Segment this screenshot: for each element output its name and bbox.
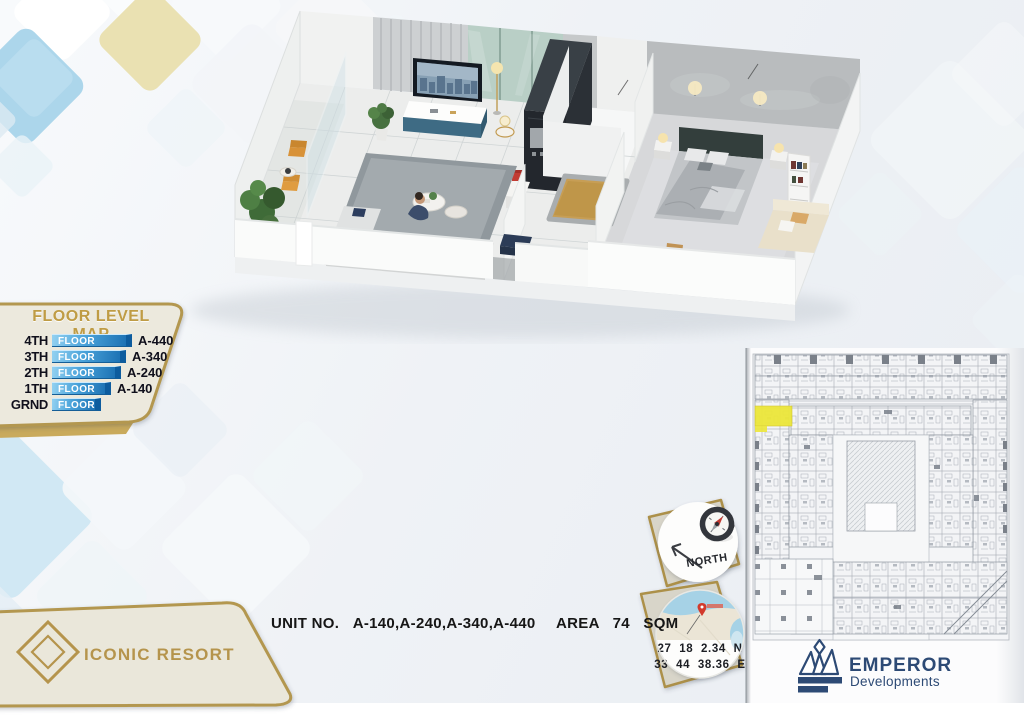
latitude-text: 27 18 2.34 N [657, 643, 742, 655]
floor-level-bar: FLOOR [52, 382, 111, 395]
area-unit: SQM [643, 615, 678, 632]
floor-level-bar: FLOOR [52, 366, 121, 379]
floor-level-label: GRND [10, 397, 48, 412]
unit-code: A-440 [138, 333, 173, 348]
area-label: AREA [556, 615, 599, 632]
unit-numbers: A-140,A-240,A-340,A-440 [353, 615, 536, 632]
building-site-plan [746, 348, 1024, 705]
floor-level-bar: FLOOR [52, 398, 101, 411]
floor-level-row: 1TH FLOOR A-140 [10, 381, 152, 395]
floor-level-label: 2TH [10, 365, 48, 380]
developer-tagline: Developments [850, 674, 940, 689]
floorplan-3d-render [190, 11, 860, 338]
floor-level-row: 2TH FLOOR A-240 [10, 365, 162, 379]
unit-info-line: UNIT NO. A-140,A-240,A-340,A-440 AREA 74… [271, 615, 678, 632]
unit-code: A-240 [127, 365, 162, 380]
floor-level-row: 3TH FLOOR A-340 [10, 349, 167, 363]
brochure-page: ICONIC RESORT NORTH 27 18 2.34 N 33 44 3… [0, 0, 1024, 724]
floor-level-label: 1TH [10, 381, 48, 396]
floor-level-bar: FLOOR [52, 350, 126, 363]
floor-level-row: GRND FLOOR [10, 397, 107, 411]
floor-level-label: 4TH [10, 333, 48, 348]
developer-name: EMPEROR [849, 655, 952, 676]
floor-level-label: 3TH [10, 349, 48, 364]
unit-code: A-140 [117, 381, 152, 396]
floor-level-row: 4TH FLOOR A-440 [10, 333, 173, 347]
area-value: 74 [613, 615, 630, 632]
unit-label: UNIT NO. [271, 615, 339, 632]
resort-name: ICONIC RESORT [84, 645, 235, 664]
unit-code: A-340 [132, 349, 167, 364]
floor-level-bar: FLOOR [52, 334, 132, 347]
